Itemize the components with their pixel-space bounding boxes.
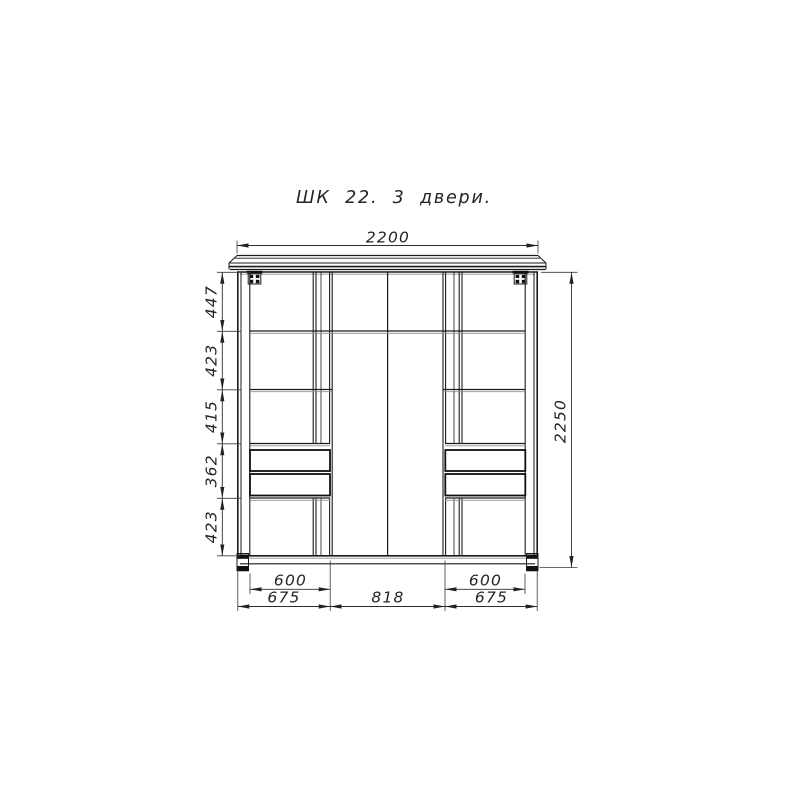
dim-label-2250: 2250 — [552, 399, 570, 443]
dim-label-675-right: 675 — [475, 589, 508, 607]
dim-label-447: 447 — [203, 285, 221, 318]
dimension-right-height: 2250 — [540, 272, 578, 567]
left-stile — [238, 272, 250, 556]
foot-right — [527, 554, 539, 571]
right-partition — [443, 272, 462, 556]
dimension-left-chain: 447 423 415 362 423 — [203, 272, 251, 556]
dimension-bottom: 600 600 675 818 675 — [238, 561, 537, 612]
cornice — [229, 256, 546, 270]
dim-label-818: 818 — [371, 589, 404, 607]
wardrobe-technical-drawing: ШК 22. 3 двери. — [0, 0, 800, 800]
dim-label-415: 415 — [203, 400, 221, 433]
dimension-top-width: 2200 — [237, 229, 538, 254]
dim-label-600-left: 600 — [274, 571, 307, 589]
dim-label-675-left: 675 — [267, 589, 300, 607]
capital-right — [513, 271, 529, 284]
capital-left — [247, 271, 263, 284]
left-partition — [313, 272, 332, 556]
dim-label-423-b: 423 — [203, 510, 221, 543]
right-stile — [525, 272, 537, 556]
drawer-left-top — [250, 450, 330, 471]
dim-label-362: 362 — [203, 454, 221, 487]
drawer-right-bottom — [445, 474, 525, 496]
drawer-left-bottom — [250, 474, 330, 496]
drawing-canvas: ШК 22. 3 двери. — [0, 0, 800, 800]
dim-label-2200: 2200 — [366, 229, 410, 247]
drawer-right-top — [445, 450, 525, 471]
dim-label-600-right: 600 — [469, 571, 502, 589]
dim-label-423-a: 423 — [203, 344, 221, 377]
drawing-title: ШК 22. 3 двери. — [296, 188, 492, 208]
